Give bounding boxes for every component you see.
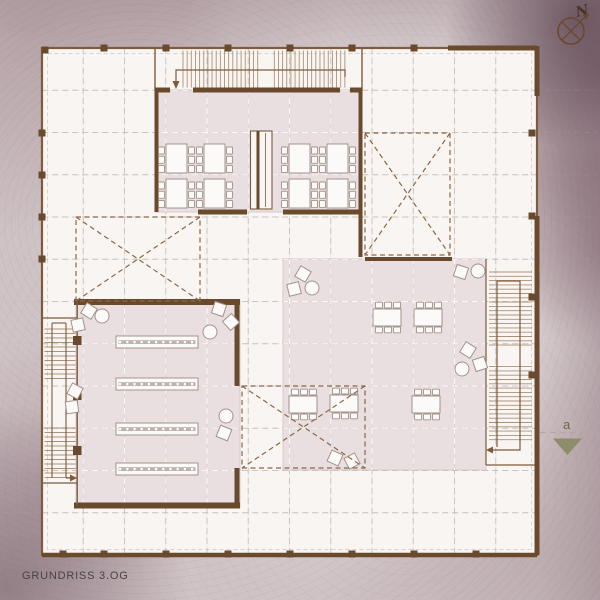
chair — [415, 389, 422, 395]
chair — [312, 201, 318, 208]
chair — [310, 414, 317, 420]
chair — [320, 201, 326, 208]
table — [204, 179, 225, 208]
floor-plan: N a GRUNDRISS 3.OG — [0, 0, 600, 600]
chair — [333, 413, 340, 419]
chair — [350, 182, 356, 189]
table — [330, 395, 358, 412]
chair — [433, 414, 440, 420]
chair — [385, 327, 392, 333]
chair — [424, 414, 431, 420]
plan-title: GRUNDRISS 3.OG — [22, 570, 129, 582]
chair — [417, 302, 424, 308]
chair — [282, 201, 288, 208]
chair — [227, 182, 233, 189]
chair — [320, 147, 326, 154]
chair — [435, 302, 442, 308]
chair — [376, 327, 383, 333]
side-table — [219, 409, 233, 423]
chair — [159, 182, 165, 189]
chair — [350, 191, 356, 198]
chair — [301, 389, 308, 395]
chair — [312, 156, 318, 163]
chair — [394, 327, 401, 333]
chair — [320, 166, 326, 173]
chair — [189, 201, 195, 208]
chair — [342, 413, 349, 419]
chair — [385, 302, 392, 308]
chair — [394, 302, 401, 308]
chair — [197, 147, 203, 154]
table — [204, 144, 225, 173]
chair — [159, 166, 165, 173]
lounge-chair — [71, 318, 85, 332]
table — [289, 396, 317, 413]
chair — [282, 166, 288, 173]
side-table — [95, 309, 109, 323]
side-table — [471, 264, 485, 278]
chair — [227, 156, 233, 163]
chair — [227, 147, 233, 154]
chair — [312, 191, 318, 198]
chair — [312, 166, 318, 173]
chair — [227, 166, 233, 173]
lounge-chair — [65, 400, 79, 414]
chair — [159, 201, 165, 208]
chair — [333, 388, 340, 394]
chair — [424, 389, 431, 395]
chair — [159, 147, 165, 154]
partition — [251, 131, 273, 209]
chair — [342, 388, 349, 394]
chair — [310, 389, 317, 395]
chair — [417, 327, 424, 333]
chair — [351, 413, 358, 419]
table — [373, 309, 401, 326]
chair — [320, 182, 326, 189]
chair — [227, 201, 233, 208]
chair — [312, 147, 318, 154]
chair — [292, 389, 299, 395]
chair — [282, 182, 288, 189]
chair — [376, 302, 383, 308]
section-marker-a: a — [540, 417, 599, 455]
table — [166, 144, 187, 173]
table — [414, 309, 442, 326]
chair — [350, 166, 356, 173]
table — [327, 179, 348, 208]
chair — [350, 201, 356, 208]
chair — [415, 414, 422, 420]
table — [289, 144, 310, 173]
chair — [189, 166, 195, 173]
chair — [189, 156, 195, 163]
chair — [301, 414, 308, 420]
chair — [227, 191, 233, 198]
chair — [282, 191, 288, 198]
chair — [426, 302, 433, 308]
section-marker-triangle — [553, 439, 582, 456]
lounge-chair — [287, 282, 302, 297]
chair — [282, 147, 288, 154]
chair — [197, 166, 203, 173]
chair — [197, 182, 203, 189]
chair — [282, 156, 288, 163]
chair — [426, 327, 433, 333]
chair — [197, 156, 203, 163]
chair — [350, 156, 356, 163]
chair — [159, 191, 165, 198]
chair — [312, 182, 318, 189]
side-table — [203, 325, 217, 339]
section-marker-label: a — [563, 417, 571, 432]
chair — [320, 191, 326, 198]
chair — [197, 191, 203, 198]
table — [289, 179, 310, 208]
chair — [320, 156, 326, 163]
north-arrow: N — [558, 2, 592, 44]
side-table — [455, 362, 469, 376]
chair — [292, 414, 299, 420]
chair — [197, 201, 203, 208]
chair — [189, 182, 195, 189]
table — [166, 179, 187, 208]
chair — [435, 327, 442, 333]
chair — [159, 156, 165, 163]
chair — [189, 191, 195, 198]
table — [327, 144, 348, 173]
chair — [189, 147, 195, 154]
side-table — [305, 281, 319, 295]
table — [412, 396, 440, 413]
chair — [350, 147, 356, 154]
chair — [433, 389, 440, 395]
